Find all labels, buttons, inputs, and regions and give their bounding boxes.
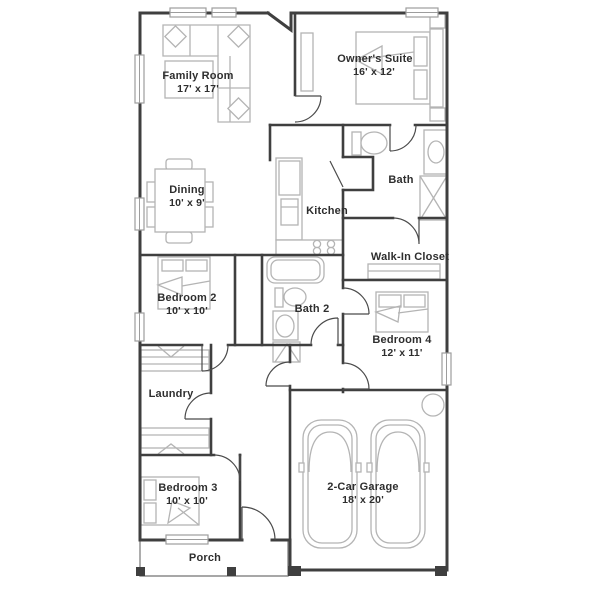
window-icon [135,55,144,103]
room-name: Bedroom 2 [157,292,216,304]
room-dimensions: 18' x 20' [342,494,384,506]
floor-plan-page: Family Room 17' x 17' Owner's Suite 16' … [0,0,600,596]
room-dimensions: 10' x 10' [166,305,208,317]
room-label-laundry: Laundry [149,388,194,400]
bedroom4-bed-icon [376,292,428,332]
window-icon [212,8,236,17]
room-label-bath: Bath [388,174,413,186]
closet-shelf-icon [368,264,440,279]
window-icon [166,535,208,544]
window-icon [135,313,144,341]
floor-plan-drawing: Family Room 17' x 17' Owner's Suite 16' … [0,0,600,596]
room-name: 2-Car Garage [327,481,399,493]
room-label-walk-in-closet: Walk-In Closet [371,251,449,263]
room-dimensions: 10' x 10' [166,495,208,507]
room-name: Kitchen [306,205,348,217]
room-dimensions: 16' x 12' [353,66,395,78]
room-dimensions: 17' x 17' [177,83,219,95]
room-label-kitchen: Kitchen [306,205,348,217]
room-name: Bath 2 [295,303,330,315]
room-name: Laundry [149,388,194,400]
room-name: Porch [189,552,221,564]
room-label-porch: Porch [189,552,221,564]
room-name: Bedroom 3 [158,482,217,494]
room-name: Bath [388,174,413,186]
water-heater-icon [422,394,444,416]
room-label-bedroom-2: Bedroom 2 10' x 10' [157,292,216,317]
window-icon [406,8,438,17]
window-icon [442,353,451,385]
room-name: Dining [169,184,204,196]
room-label-bath-2: Bath 2 [295,303,330,315]
room-name: Owner's Suite [337,53,413,65]
room-name: Bedroom 4 [372,334,432,346]
window-icon [135,198,144,230]
room-label-dining: Dining 10' x 9' [169,184,205,209]
room-dimensions: 12' x 11' [381,347,422,359]
window-icon [170,8,206,17]
room-dimensions: 10' x 9' [169,197,205,209]
room-name: Walk-In Closet [371,251,449,263]
room-name: Family Room [162,70,233,82]
